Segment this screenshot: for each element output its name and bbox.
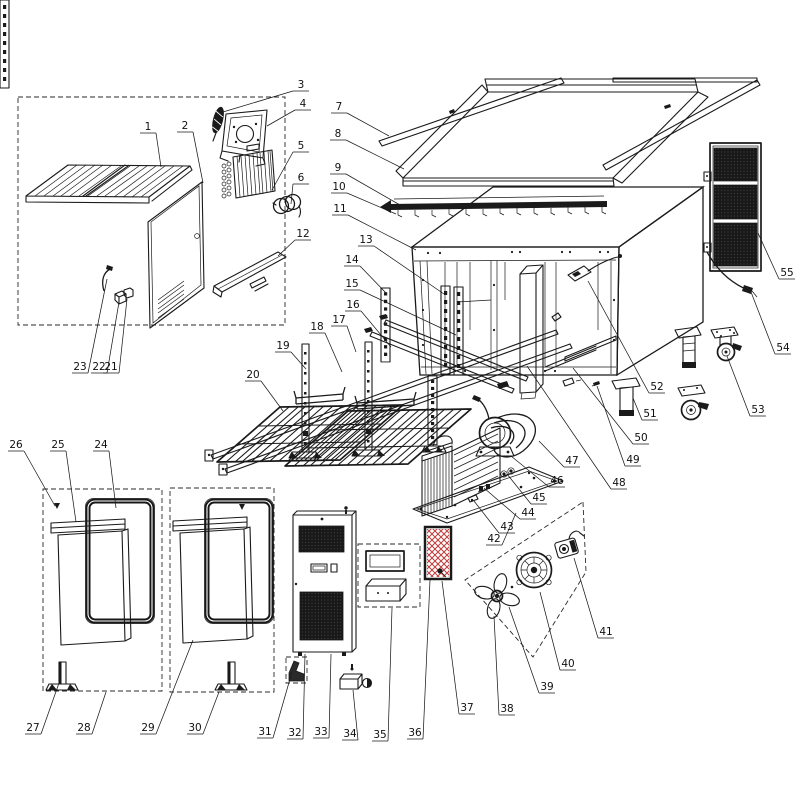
fan-motor xyxy=(554,531,584,559)
caster-wheel-upper xyxy=(711,327,742,361)
svg-text:50: 50 xyxy=(634,432,647,444)
svg-text:26: 26 xyxy=(9,439,23,451)
part-label-11: 11 xyxy=(332,203,416,250)
part-label-4: 4 xyxy=(267,98,311,126)
svg-text:2: 2 xyxy=(182,120,189,132)
control-kit-box xyxy=(358,544,420,607)
part-label-20: 20 xyxy=(245,369,283,411)
svg-text:3: 3 xyxy=(298,79,305,91)
side-vent-panel xyxy=(148,182,204,328)
part-label-41: 41 xyxy=(574,558,614,638)
direction-arrow xyxy=(239,504,245,510)
svg-text:7: 7 xyxy=(336,101,343,113)
part-label-47: 47 xyxy=(539,441,580,467)
svg-text:37: 37 xyxy=(460,702,473,714)
svg-text:47: 47 xyxy=(565,455,578,467)
drain-channel xyxy=(213,252,286,297)
svg-text:42: 42 xyxy=(487,533,500,545)
exploded-diagram-page: 1234567891011121314151617181920212223242… xyxy=(0,0,800,800)
fan-stem xyxy=(213,133,216,141)
svg-text:45: 45 xyxy=(532,492,545,504)
kit-box-top-left xyxy=(18,97,285,325)
svg-text:49: 49 xyxy=(626,454,639,466)
diagram-canvas: 1234567891011121314151617181920212223242… xyxy=(0,0,800,800)
part-label-31: 31 xyxy=(257,672,292,738)
svg-text:16: 16 xyxy=(346,299,360,311)
svg-text:53: 53 xyxy=(751,404,764,416)
fan-guard xyxy=(517,553,552,588)
svg-text:29: 29 xyxy=(141,722,154,734)
adjustable-leg-loose xyxy=(612,378,640,416)
part-label-30: 30 xyxy=(187,692,219,734)
svg-text:8: 8 xyxy=(335,128,342,140)
svg-text:31: 31 xyxy=(258,726,271,738)
svg-text:36: 36 xyxy=(408,727,422,739)
svg-text:27: 27 xyxy=(26,722,39,734)
svg-text:40: 40 xyxy=(561,658,574,670)
edge-trim-rail-left xyxy=(379,78,564,146)
caster-wheel-lower xyxy=(678,385,709,420)
svg-text:54: 54 xyxy=(776,342,790,354)
door-panel xyxy=(51,519,131,645)
part-label-12: 12 xyxy=(278,228,311,256)
drain-fitting-box xyxy=(340,664,372,689)
svg-text:39: 39 xyxy=(540,681,553,693)
svg-text:41: 41 xyxy=(599,626,612,638)
fan-impeller-small xyxy=(210,106,225,133)
part-label-52: 52 xyxy=(588,281,665,393)
svg-text:6: 6 xyxy=(298,172,305,184)
part-label-54: 54 xyxy=(751,292,791,354)
door-kit-box-1 xyxy=(43,489,162,691)
part-label-15: 15 xyxy=(344,278,456,335)
svg-text:21: 21 xyxy=(104,361,117,373)
thermostat-lamp xyxy=(552,254,622,321)
svg-text:12: 12 xyxy=(296,228,309,240)
part-label-50: 50 xyxy=(573,368,649,444)
svg-text:11: 11 xyxy=(333,203,346,215)
svg-text:51: 51 xyxy=(643,408,656,420)
part-label-29: 29 xyxy=(140,640,193,734)
part-label-25: 25 xyxy=(50,439,76,522)
part-label-55: 55 xyxy=(758,233,795,279)
svg-text:4: 4 xyxy=(300,98,307,110)
part-label-35: 35 xyxy=(372,608,392,741)
svg-text:14: 14 xyxy=(345,254,359,266)
svg-text:19: 19 xyxy=(276,340,289,352)
part-label-37: 37 xyxy=(442,581,475,714)
svg-text:28: 28 xyxy=(77,722,90,734)
part-label-24: 24 xyxy=(93,439,116,508)
fan-shroud-bracket xyxy=(220,110,267,166)
door-hinge xyxy=(46,662,78,690)
part-label-38: 38 xyxy=(494,616,515,715)
mesh-vent-bottom xyxy=(300,592,343,640)
sensor-wire xyxy=(103,265,113,291)
part-label-19: 19 xyxy=(275,340,306,369)
control-box xyxy=(366,579,406,601)
svg-text:48: 48 xyxy=(612,477,625,489)
part-label-39: 39 xyxy=(509,607,555,693)
small-clip-parts xyxy=(115,288,133,304)
filter-drier-mesh xyxy=(425,527,451,579)
svg-text:25: 25 xyxy=(51,439,64,451)
part-label-26: 26 xyxy=(8,439,55,506)
svg-text:55: 55 xyxy=(780,267,793,279)
part-label-21: 21 xyxy=(103,299,127,373)
part-label-17: 17 xyxy=(331,314,356,352)
svg-text:5: 5 xyxy=(298,140,305,152)
evaporator-cover-panel xyxy=(293,506,356,656)
part-label-23: 23 xyxy=(72,279,107,373)
part-label-40: 40 xyxy=(540,592,576,670)
svg-text:30: 30 xyxy=(188,722,201,734)
svg-text:32: 32 xyxy=(288,727,301,739)
mesh-vent-top xyxy=(299,526,344,552)
corner-bracket-part xyxy=(289,661,304,681)
svg-text:1: 1 xyxy=(145,121,152,133)
air-duct-column xyxy=(520,265,543,399)
part-label-36: 36 xyxy=(407,580,430,739)
hanger-bar xyxy=(380,196,607,217)
top-grille-panel xyxy=(26,165,192,203)
svg-text:52: 52 xyxy=(650,381,663,393)
svg-text:33: 33 xyxy=(314,726,327,738)
svg-text:35: 35 xyxy=(373,729,386,741)
door-gasket xyxy=(86,499,155,624)
part-label-18: 18 xyxy=(309,321,342,372)
pilaster-strip xyxy=(0,0,9,88)
part-label-3: 3 xyxy=(223,79,309,112)
svg-text:20: 20 xyxy=(246,369,259,381)
wire-shelf xyxy=(217,405,403,462)
adjustable-leg-attached xyxy=(675,327,701,368)
svg-text:13: 13 xyxy=(359,234,372,246)
svg-text:46: 46 xyxy=(550,475,564,487)
fan-blade xyxy=(473,572,521,620)
display-bezel xyxy=(366,551,404,571)
svg-text:17: 17 xyxy=(332,314,345,326)
svg-text:18: 18 xyxy=(310,321,323,333)
svg-text:15: 15 xyxy=(345,278,358,290)
part-label-33: 33 xyxy=(313,654,331,738)
svg-text:44: 44 xyxy=(521,507,535,519)
part-label-1: 1 xyxy=(140,121,161,167)
part-label-27: 27 xyxy=(25,683,59,734)
svg-text:9: 9 xyxy=(335,162,342,174)
part-label-51: 51 xyxy=(633,398,658,420)
svg-text:22: 22 xyxy=(92,361,105,373)
part-label-28: 28 xyxy=(76,692,106,734)
svg-text:10: 10 xyxy=(332,181,345,193)
part-label-46: 46 xyxy=(511,456,565,487)
part-label-34: 34 xyxy=(342,690,358,740)
svg-text:38: 38 xyxy=(500,703,513,715)
part-label-53: 53 xyxy=(727,356,766,416)
svg-text:23: 23 xyxy=(73,361,86,373)
rear-mesh-panel xyxy=(704,143,761,271)
capillary-coil xyxy=(273,195,301,218)
part-label-13: 13 xyxy=(358,234,444,294)
cabinet-body xyxy=(412,187,703,375)
svg-text:43: 43 xyxy=(500,521,513,533)
svg-text:24: 24 xyxy=(94,439,108,451)
svg-text:34: 34 xyxy=(343,728,357,740)
